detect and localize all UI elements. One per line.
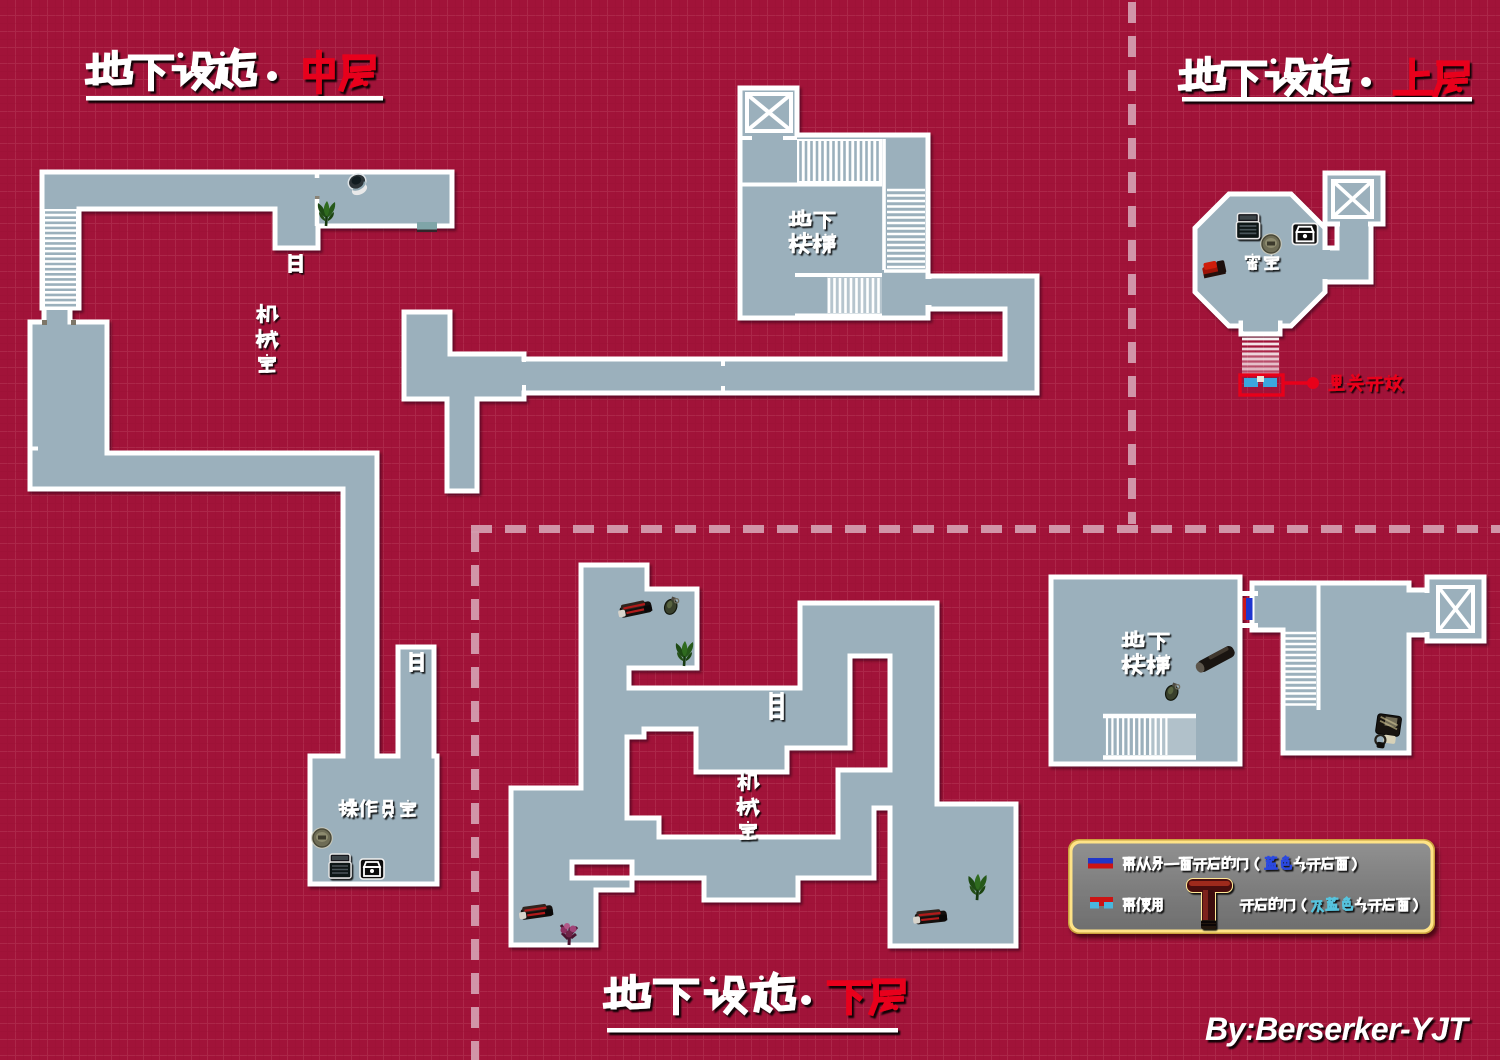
svg-text:By:Berserker-YJT: By:Berserker-YJT [1205, 1011, 1470, 1047]
